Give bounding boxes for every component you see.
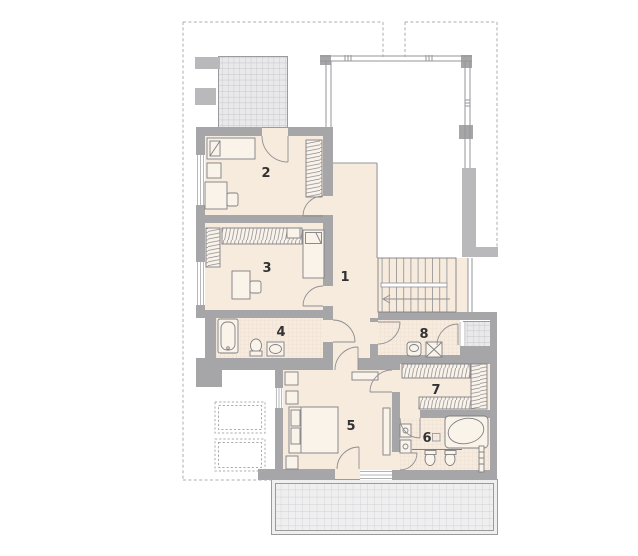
radiator [479, 446, 484, 472]
wardrobe-hatch [419, 397, 471, 409]
hall-west-wall [323, 216, 333, 286]
stair-handrail [381, 283, 447, 287]
stairs [378, 258, 456, 312]
room-5-west-wall [275, 368, 283, 470]
room-label-8: 8 [419, 327, 428, 342]
threshold [262, 127, 288, 136]
hall-west-wall [323, 306, 333, 320]
hall-west-wall [323, 127, 333, 196]
void-window-pier [459, 125, 473, 139]
room-2-north-wall [196, 127, 262, 136]
room-5-south-wall [258, 469, 335, 480]
corner-wall-block [196, 358, 222, 387]
void-east-wall [462, 168, 476, 247]
bed [303, 230, 324, 278]
skylight-outline [215, 402, 265, 471]
nightstand [286, 456, 298, 469]
room-label-2: 2 [261, 166, 270, 181]
desk [205, 182, 227, 209]
bidet-tank [445, 451, 456, 455]
room-3-4-wall [196, 310, 333, 318]
wardrobe-hatch [402, 364, 470, 378]
east-wall [490, 312, 497, 480]
threshold [392, 370, 400, 392]
threshold [323, 286, 333, 306]
threshold [323, 320, 333, 342]
threshold [392, 452, 400, 470]
room-8-north-wall [378, 312, 497, 320]
upper-balcony-tiles [219, 57, 287, 127]
terrace-tiles [276, 484, 493, 530]
room-4-west-wall [205, 318, 216, 358]
room-label-1: 1 [340, 270, 349, 285]
threshold [323, 196, 333, 216]
armchair [285, 372, 298, 385]
wardrobe-hatch [206, 228, 220, 267]
floor-plan-drawing: 1 2 3 4 5 6 7 8 [0, 0, 638, 556]
room-label-5: 5 [346, 419, 355, 434]
stair-treads-lower [380, 287, 450, 312]
chair [227, 193, 238, 206]
wardrobe-hatch [471, 364, 487, 409]
room-5-6-wall [392, 392, 400, 452]
toilet-tank [425, 451, 436, 455]
void-east-wall-foot [462, 247, 498, 257]
hall-west-wall [323, 342, 333, 358]
chair [250, 281, 261, 293]
room-8-west-wall [370, 344, 378, 355]
room-8-west-wall [370, 318, 378, 322]
wall-sink [400, 440, 411, 453]
wardrobe-hatch [306, 140, 322, 197]
toilet-tank [250, 351, 262, 356]
toilet [251, 339, 262, 352]
desk [232, 271, 250, 299]
threshold [370, 322, 378, 344]
threshold [400, 410, 420, 418]
room-label-6: 6 [422, 431, 431, 446]
nightstand [286, 391, 298, 404]
stair-treads-upper [380, 258, 450, 284]
room-label-4: 4 [276, 325, 285, 340]
tv-board [383, 408, 390, 455]
wall-stub [195, 57, 220, 69]
hall-doorway-floor [333, 358, 358, 370]
threshold [335, 469, 360, 480]
wall-stub [195, 88, 216, 105]
shelf [287, 228, 300, 238]
small-balcony-tiles [464, 322, 490, 346]
room-label-3: 3 [262, 261, 271, 276]
room-label-7: 7 [431, 383, 440, 398]
nightstand [207, 163, 221, 178]
floor-plan-canvas: 1 2 3 4 5 6 7 8 [0, 0, 638, 556]
bed [289, 407, 338, 453]
